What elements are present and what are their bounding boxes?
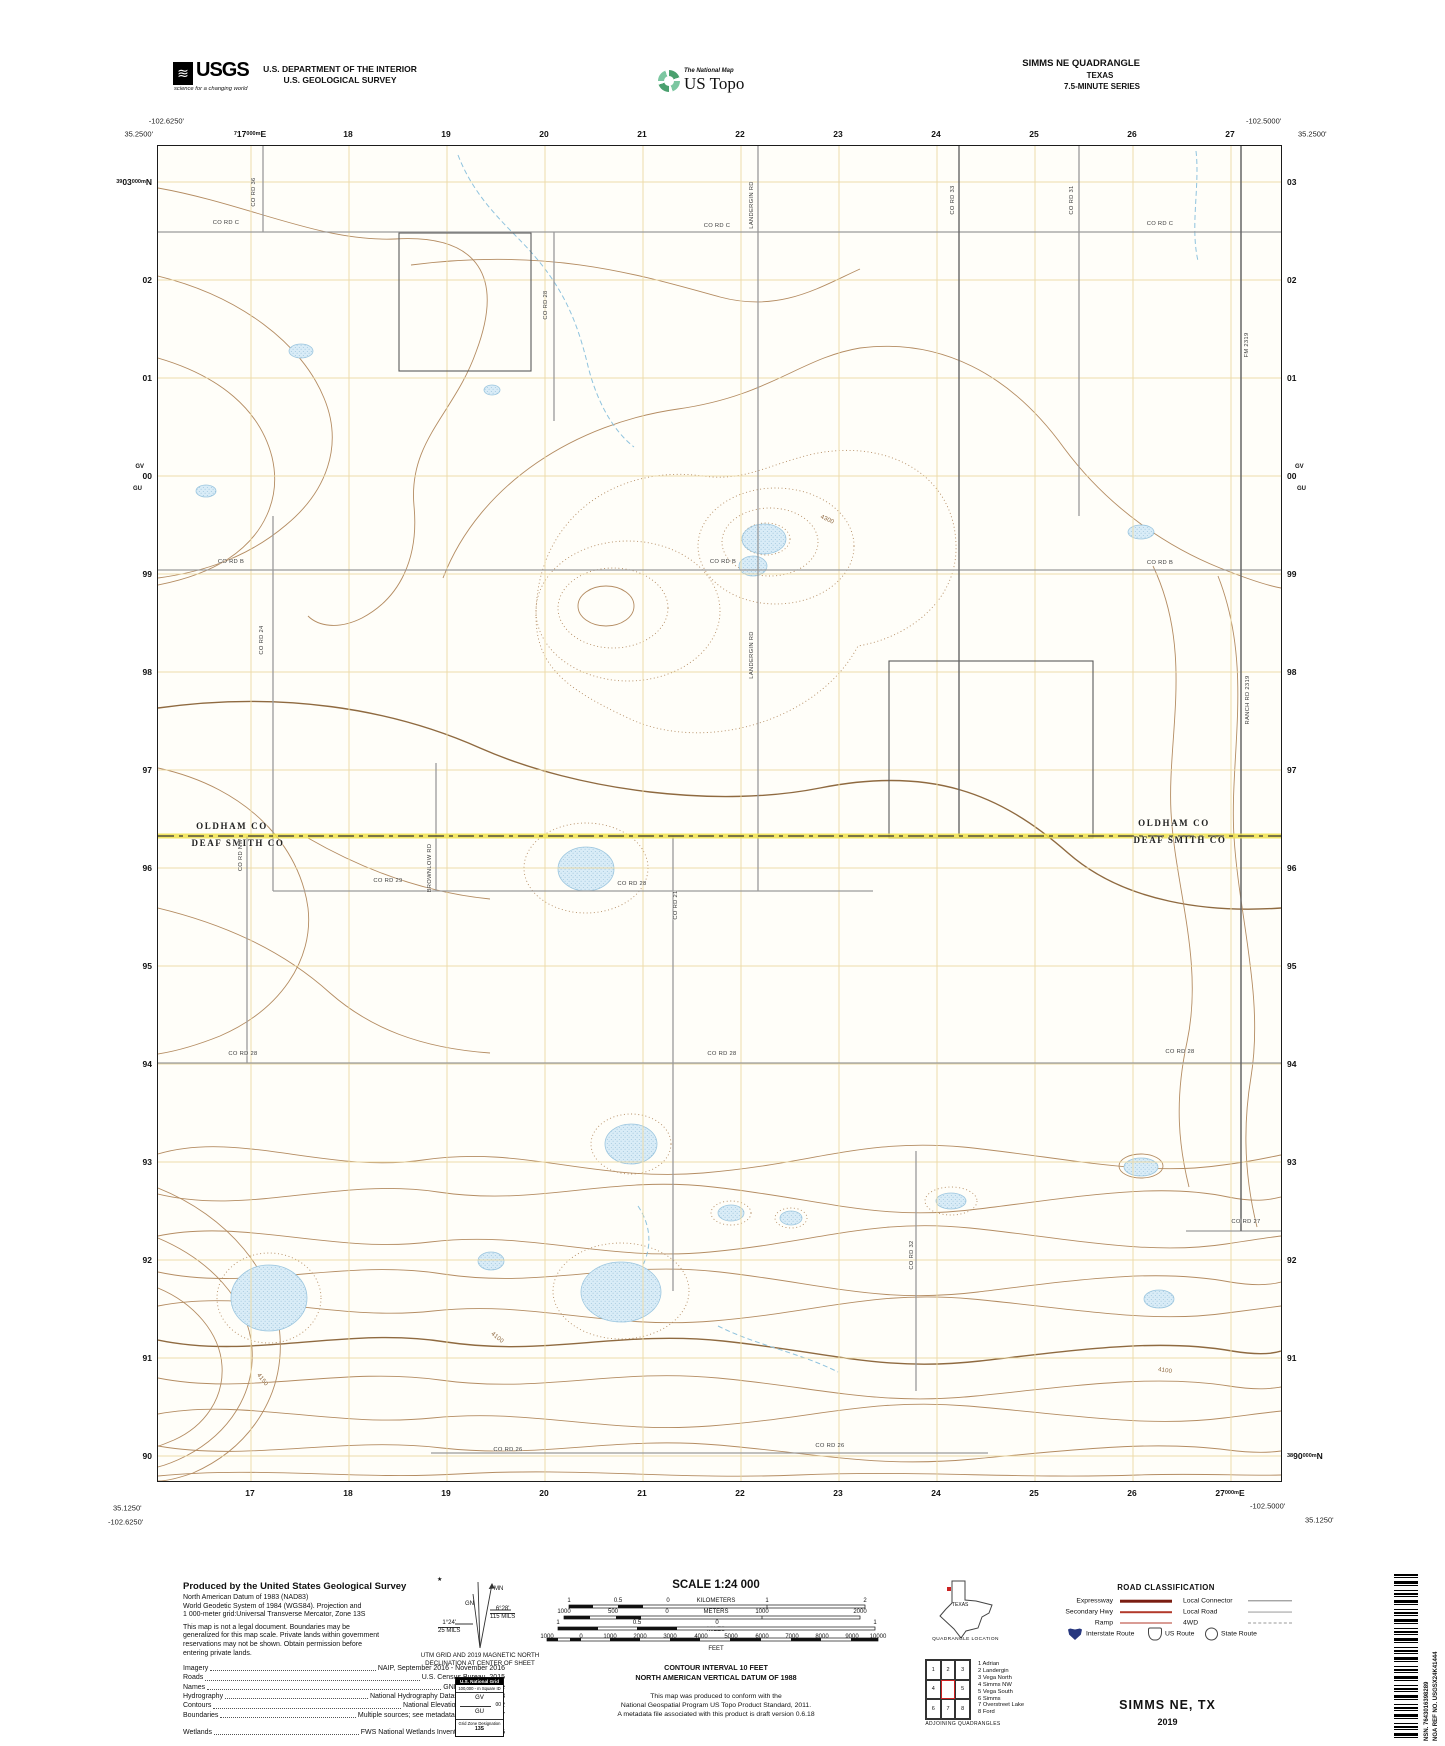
us-topo-logo: The National Map US Topo (658, 68, 778, 98)
road-class-label: Local Road (1183, 1609, 1217, 1616)
grid-label-left: 97 (143, 760, 152, 778)
grid-label-top: 18 (343, 124, 352, 142)
grid-label-right: 92 (1287, 1250, 1296, 1268)
grid-label-top: 21 (637, 124, 646, 142)
adjoining-quad-cell: 5 (955, 1680, 970, 1700)
us-topo-map-sheet: ≋ USGS science for a changing world U.S.… (0, 0, 1445, 1746)
road-class-label: Local Connector (1183, 1598, 1233, 1605)
grid-label-top: 717000mE (234, 124, 266, 142)
grid-label-right: 96 (1287, 858, 1296, 876)
grid-label-top: 25 (1029, 124, 1038, 142)
adjoining-quadrangle-names: 1 Adrian2 Landergin3 Vega North4 Simms N… (978, 1661, 1048, 1716)
grid-label-right: 91 (1287, 1348, 1296, 1366)
contour-interval-note: CONTOUR INTERVAL 10 FEET NORTH AMERICAN … (560, 1663, 872, 1682)
road-class-sample-line (1120, 1623, 1172, 1624)
quad-name: SIMMS NE QUADRANGLE (1000, 58, 1140, 69)
grid-label-top: 24 (931, 124, 940, 142)
grid-label-top: 19 (441, 124, 450, 142)
adjoining-quad-cell: 7 (941, 1699, 956, 1719)
standard-conformance-note: This map was produced to conform with th… (530, 1693, 902, 1719)
adjoining-quad-cell: 2 (941, 1660, 956, 1680)
grid-label-left: 95 (143, 956, 152, 974)
texas-outline (930, 1580, 1000, 1642)
usng-gu: GU (456, 1709, 503, 1715)
grid-square-id: GV (135, 455, 144, 473)
adjoining-quad-cell: 1 (926, 1660, 941, 1680)
road-class-label: Ramp (1095, 1620, 1113, 1627)
barcode (1394, 1574, 1418, 1740)
road-class-sample-line (1120, 1600, 1172, 1603)
usng-gv: GV (456, 1693, 503, 1701)
true-north-star: ★ (437, 1576, 442, 1583)
dept-line1: U.S. DEPARTMENT OF THE INTERIOR (240, 64, 440, 75)
grid-label-left: 93 (143, 1152, 152, 1170)
declination-caption: UTM GRID AND 2019 MAGNETIC NORTH DECLINA… (395, 1652, 565, 1668)
quadrangle-title: SIMMS NE QUADRANGLE TEXAS 7.5-MINUTE SER… (1000, 58, 1140, 91)
grid-north-label: GN (465, 1601, 474, 1607)
usng-zeros: 00 (495, 1702, 501, 1708)
corner-coordinate: 35.1250' (113, 1504, 142, 1513)
grid-label-bottom: 24 (931, 1483, 940, 1501)
quad-series: 7.5-MINUTE SERIES (1000, 82, 1140, 91)
grid-label-left: 92 (143, 1250, 152, 1268)
usng-divider (460, 1706, 491, 1707)
grid-label-top: 27 (1225, 124, 1234, 142)
adjoining-quadrangle-grid: 12345678 (925, 1659, 971, 1720)
corner-coordinate: 35.1250' (1305, 1516, 1334, 1525)
streams (458, 151, 1198, 1372)
grid-label-right: 95 (1287, 956, 1296, 974)
adjoining-quad-name: 8 Ford (978, 1709, 1048, 1716)
grid-label-left: 00 (143, 466, 152, 484)
grid-label-right: 02 (1287, 270, 1296, 288)
usng-subtitle: 100,000 - m Square ID (456, 1685, 503, 1693)
scale-title: SCALE 1:24 000 (630, 1579, 802, 1591)
grid-label-left: 02 (143, 270, 152, 288)
us-topo-label: US Topo (684, 74, 744, 94)
road-class-label: 4WD (1183, 1620, 1198, 1627)
grid-label-left: 94 (143, 1054, 152, 1072)
corner-coordinate: -102.6250' (108, 1518, 143, 1527)
map-drawing (158, 146, 1281, 1481)
adjoining-quad-name: 4 Simms NW (978, 1682, 1048, 1689)
department-heading: U.S. DEPARTMENT OF THE INTERIOR U.S. GEO… (240, 64, 440, 86)
grid-label-top: 23 (833, 124, 842, 142)
grid-label-right: 99 (1287, 564, 1296, 582)
corner-coordinate: 35.2500' (124, 130, 153, 139)
dept-line2: U.S. GEOLOGICAL SURVEY (240, 75, 440, 86)
adjoining-quad-name: 3 Vega North (978, 1675, 1048, 1682)
scale-bars (540, 1596, 890, 1648)
barcode-nsn: NSN. 7643016398289 (1424, 1682, 1430, 1741)
route-badge-label: State Route (1221, 1631, 1257, 1638)
grid-label-left: 3903000mN (116, 172, 152, 190)
texas-label: TEXAS (952, 1602, 968, 1608)
road-classification-title: ROAD CLASSIFICATION (1090, 1583, 1242, 1592)
gn-declination-value: 1°24' 25 MILS (438, 1620, 460, 1634)
grid-label-right: 00 (1287, 466, 1296, 484)
grid-label-left: 98 (143, 662, 152, 680)
grid-square-id: GV (1295, 455, 1304, 473)
usng-title: U.S. National Grid (456, 1678, 503, 1685)
grid-label-right: 03 (1287, 172, 1296, 190)
adjoining-quad-name: 1 Adrian (978, 1661, 1048, 1668)
usng-zone-label: Grid Zone Designation (456, 1719, 503, 1726)
grid-label-top: 22 (735, 124, 744, 142)
quad-location-marker (947, 1587, 951, 1591)
corner-coordinate: -102.5000' (1246, 117, 1281, 126)
grid-label-right: 93 (1287, 1152, 1296, 1170)
grid-label-right: 01 (1287, 368, 1296, 386)
grid-label-bottom: 18 (343, 1483, 352, 1501)
barcode-nga-ref: NGA REF NO. USGSX24K41444 (1433, 1652, 1439, 1741)
sheet-year: 2019 (1095, 1717, 1240, 1727)
grid-label-left: 99 (143, 564, 152, 582)
grid-label-left: 96 (143, 858, 152, 876)
grid-label-bottom: 22 (735, 1483, 744, 1501)
route-badge-label: US Route (1165, 1631, 1194, 1638)
grid-label-right: 98 (1287, 662, 1296, 680)
road-class-sample-line (1248, 1600, 1292, 1601)
grid-label-bottom: 17 (245, 1483, 254, 1501)
route-badge-label: Interstate Route (1086, 1631, 1134, 1638)
road-class-label: Secondary Hwy (1065, 1609, 1113, 1616)
grid-label-bottom: 23 (833, 1483, 842, 1501)
adjoining-quad-cell: 8 (955, 1699, 970, 1719)
grid-square-id: GU (133, 477, 142, 495)
adjoining-quad-cell: 4 (926, 1680, 941, 1700)
national-map-icon (658, 70, 680, 92)
utm-grid-lines (158, 146, 1281, 1481)
usgs-wave-icon: ≋ (173, 62, 193, 85)
grid-label-left: 01 (143, 368, 152, 386)
grid-label-bottom: 25 (1029, 1483, 1038, 1501)
usng-zone-value: 13S (456, 1726, 503, 1732)
grid-label-bottom: 26 (1127, 1483, 1136, 1501)
quadrangle-location-caption: QUADRANGLE LOCATION (918, 1637, 1013, 1642)
usng-box: U.S. National Grid 100,000 - m Square ID… (455, 1677, 504, 1737)
grid-label-top: 20 (539, 124, 548, 142)
grid-label-top: 26 (1127, 124, 1136, 142)
adjoining-quad-name: 6 Simms (978, 1696, 1048, 1703)
grid-label-bottom: 20 (539, 1483, 548, 1501)
road-class-label: Expressway (1076, 1598, 1113, 1605)
road-class-sample-line (1248, 1612, 1292, 1613)
road-class-sample-line (1120, 1611, 1172, 1613)
grid-label-right: 97 (1287, 760, 1296, 778)
adjoining-quad-name: 5 Vega South (978, 1689, 1048, 1696)
grid-label-left: 90 (143, 1446, 152, 1464)
adjoining-quad-name: 2 Landergin (978, 1668, 1048, 1675)
grid-label-right: 3890000mN (1287, 1446, 1323, 1464)
state-route-circle-icon (1205, 1628, 1218, 1641)
usgs-tagline: science for a changing world (174, 86, 247, 92)
adjoining-quad-cell: 3 (955, 1660, 970, 1680)
mn-declination-value: 6°28' 115 MILS (490, 1606, 515, 1620)
corner-coordinate: -102.5000' (1250, 1502, 1285, 1511)
adjoining-quad-cell: 6 (926, 1699, 941, 1719)
quad-state: TEXAS (1000, 71, 1140, 80)
sheet-title: SIMMS NE, TX (1095, 1698, 1240, 1712)
current-quad-cell (941, 1680, 956, 1700)
magnetic-north-label: MN (494, 1586, 503, 1592)
grid-label-right: 94 (1287, 1054, 1296, 1072)
grid-square-id: GU (1297, 477, 1306, 495)
corner-coordinate: -102.6250' (149, 117, 184, 126)
road-class-sample-line (1248, 1623, 1292, 1624)
roads (158, 146, 1281, 1453)
interstate-shield-icon (1068, 1628, 1082, 1640)
us-route-shield-icon (1148, 1628, 1162, 1641)
topo-map (157, 145, 1282, 1482)
grid-label-bottom: 19 (441, 1483, 450, 1501)
grid-label-bottom: 27000mE (1215, 1483, 1244, 1501)
corner-coordinate: 35.2500' (1298, 130, 1327, 139)
grid-label-bottom: 21 (637, 1483, 646, 1501)
adjoining-quadrangles-caption: ADJOINING QUADRANGLES (908, 1721, 1018, 1727)
grid-label-left: 91 (143, 1348, 152, 1366)
adjoining-quad-name: 7 Overstreet Lake (978, 1702, 1048, 1709)
